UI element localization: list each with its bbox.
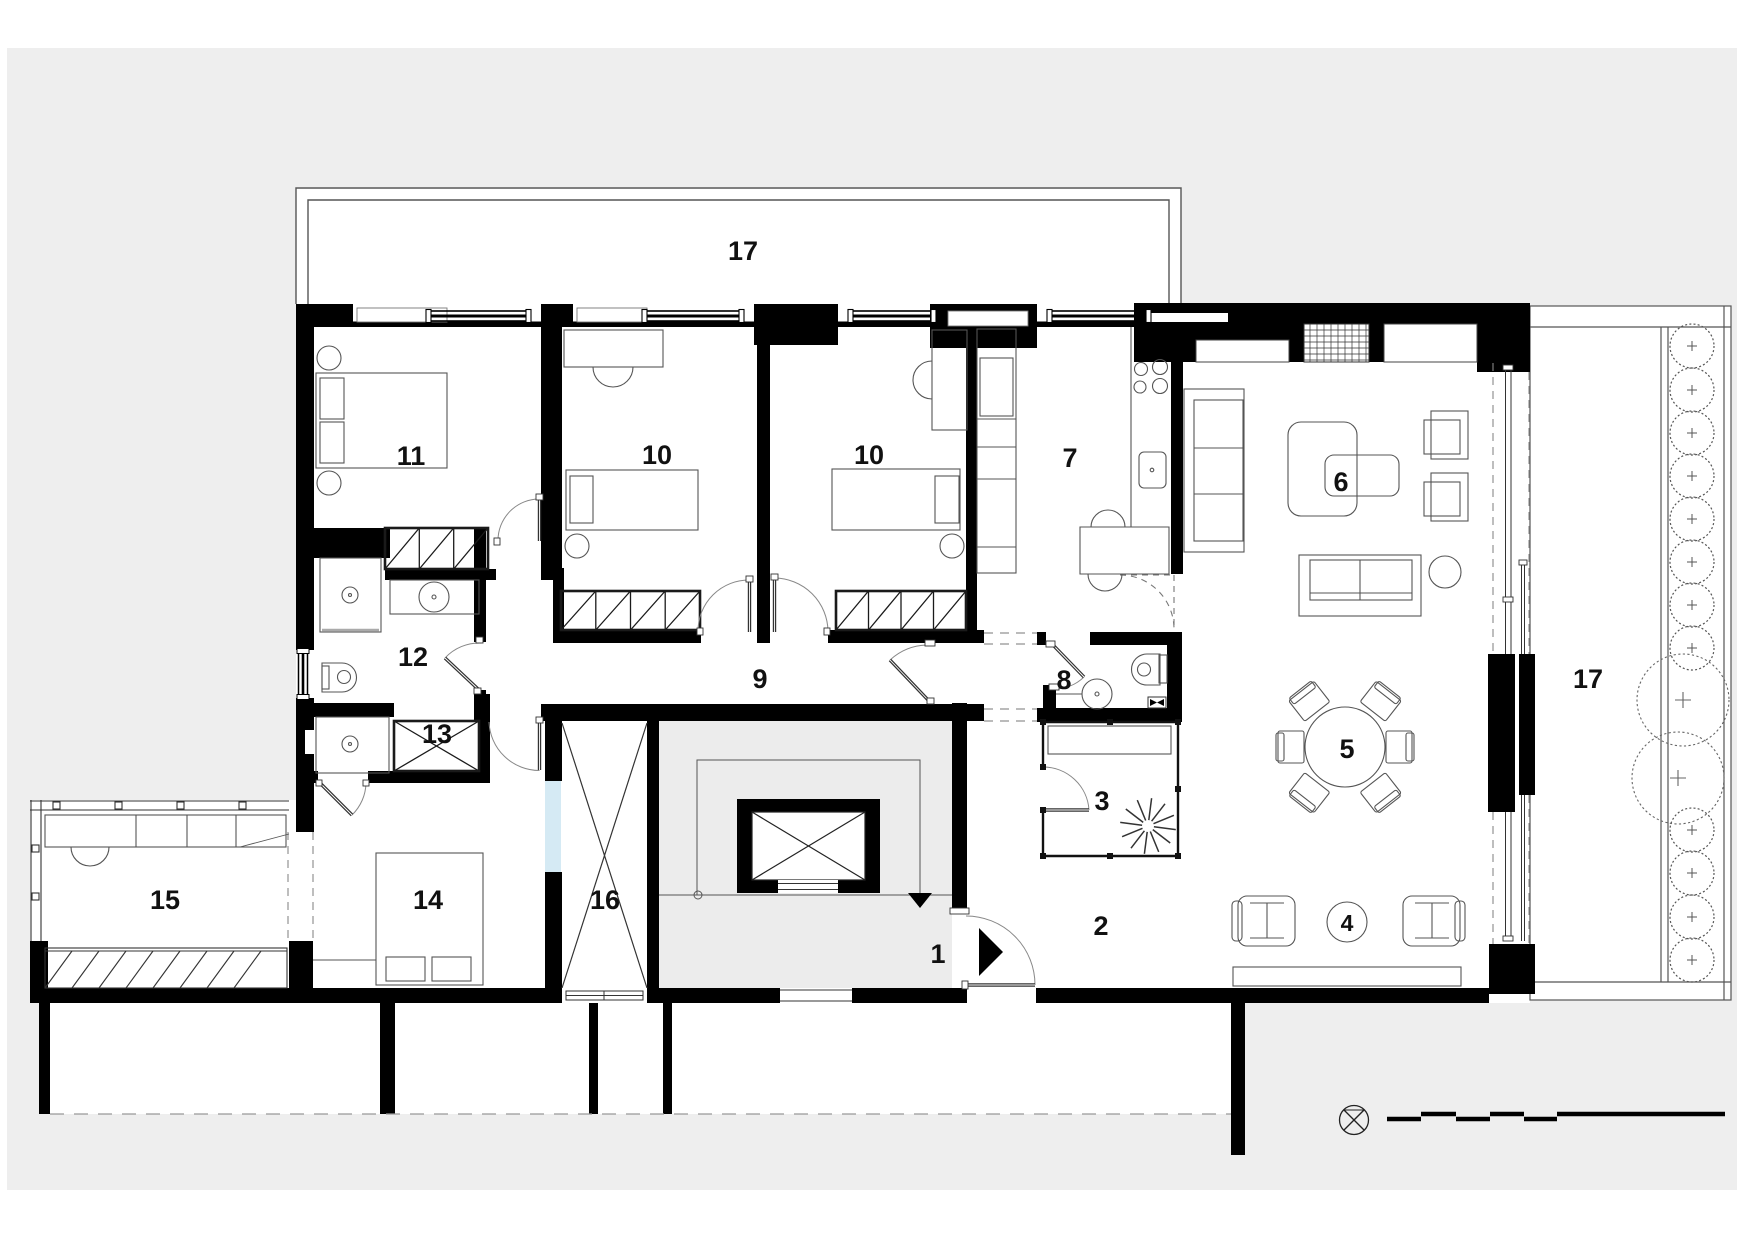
svg-text:14: 14	[413, 885, 443, 915]
svg-text:2: 2	[1093, 911, 1108, 941]
svg-text:17: 17	[728, 236, 758, 266]
svg-text:10: 10	[642, 440, 672, 470]
svg-text:12: 12	[398, 642, 428, 672]
svg-text:13: 13	[422, 719, 452, 749]
svg-text:3: 3	[1094, 786, 1109, 816]
svg-text:8: 8	[1056, 665, 1071, 695]
svg-text:15: 15	[150, 885, 180, 915]
svg-text:5: 5	[1339, 734, 1354, 764]
svg-text:17: 17	[1573, 664, 1603, 694]
svg-text:7: 7	[1062, 443, 1077, 473]
svg-text:11: 11	[397, 441, 426, 471]
svg-text:1: 1	[930, 939, 945, 969]
svg-text:10: 10	[854, 440, 884, 470]
svg-text:4: 4	[1341, 910, 1354, 936]
svg-text:9: 9	[752, 664, 767, 694]
svg-text:16: 16	[590, 885, 620, 915]
svg-text:6: 6	[1333, 467, 1348, 497]
